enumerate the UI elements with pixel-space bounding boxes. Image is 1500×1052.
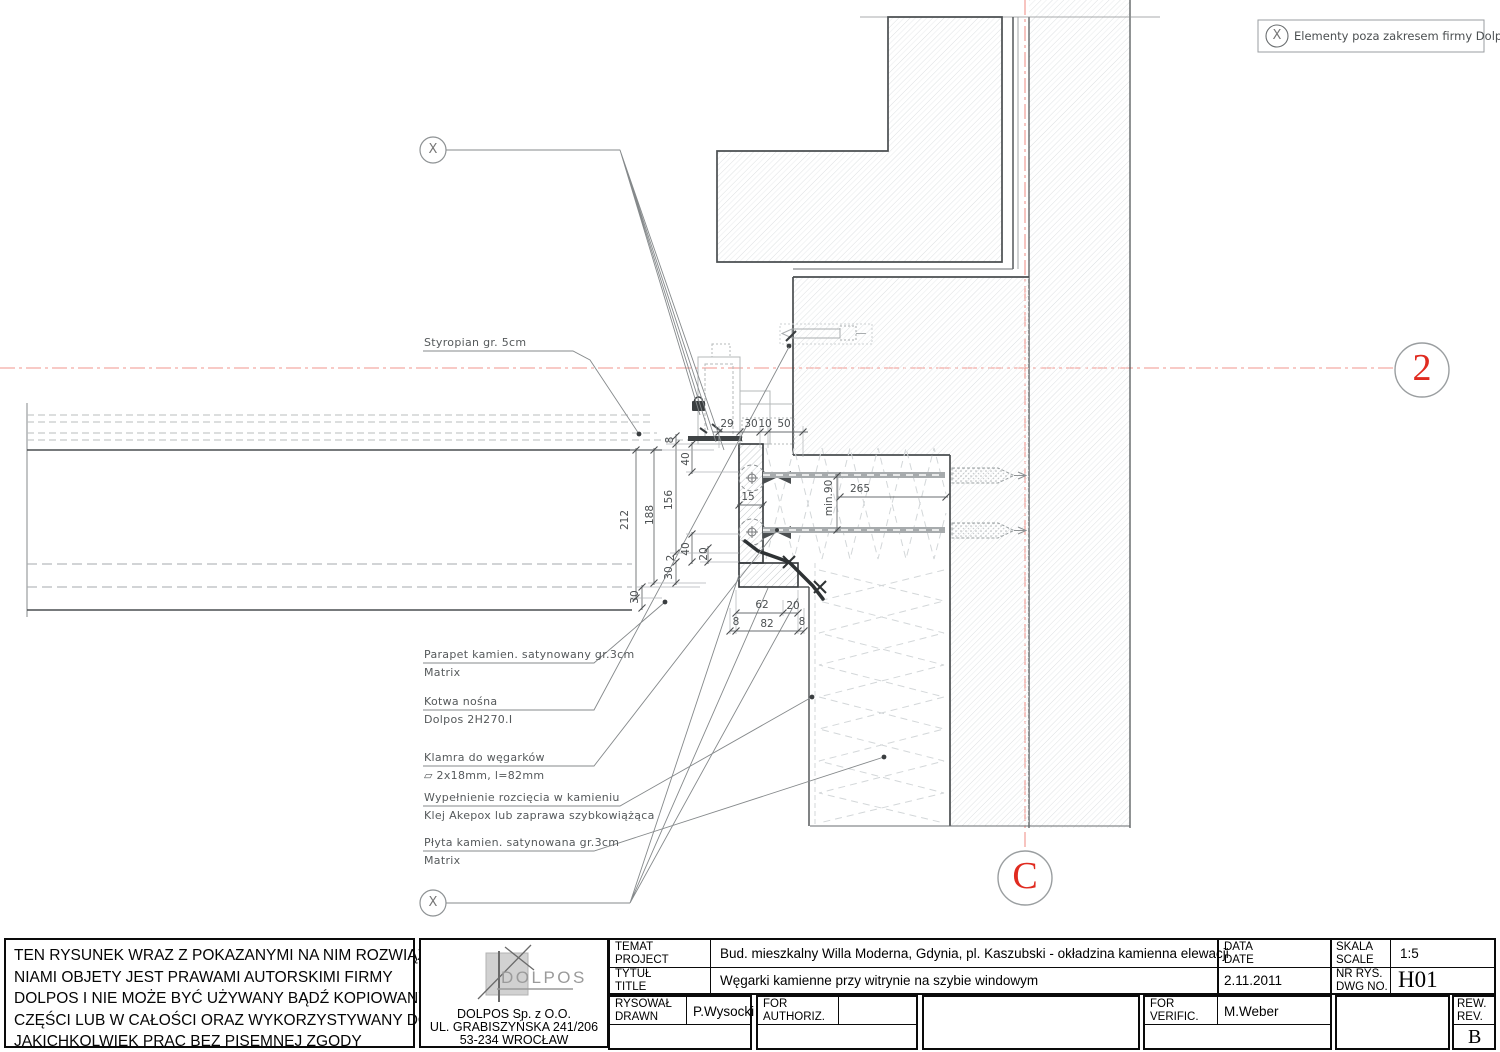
copyright-line: DOLPOS I NIE MOŻE BYĆ UŻYWANY BĄDŹ KOPIO… bbox=[14, 988, 405, 1010]
technical-drawing-canvas bbox=[0, 0, 1500, 935]
field-data: DATADATE bbox=[1224, 941, 1254, 967]
dimension-label: 29 bbox=[720, 418, 733, 430]
dimension-label: 20 bbox=[786, 600, 799, 612]
dimension-label: 8 bbox=[664, 437, 676, 444]
revision-value: B bbox=[1468, 1026, 1481, 1049]
copyright-line: JAKICHKOLWIEK PRAC BEZ PISEMNEJ ZGODY bbox=[14, 1031, 405, 1052]
field-tytul: TYTUŁTITLE bbox=[615, 968, 651, 994]
dimension-label: 8 bbox=[733, 616, 740, 628]
date-value: 2.11.2011 bbox=[1224, 973, 1282, 988]
dimension-label: 30 bbox=[744, 418, 757, 430]
scope-marker-top-icon: X bbox=[429, 142, 438, 157]
callout-title: Płyta kamien. satynowana gr.3cm bbox=[424, 836, 619, 849]
callout-title: Kotwa nośna bbox=[424, 695, 497, 708]
field-skala: SKALASCALE bbox=[1336, 941, 1374, 967]
field-temat: TEMATPROJECT bbox=[615, 941, 669, 967]
company-name: DOLPOS Sp. z O.O. bbox=[421, 1008, 607, 1020]
callout-title: Wypełnienie rozcięcia w kamieniu bbox=[424, 791, 620, 804]
dimension-label: 30 bbox=[629, 590, 641, 603]
dimension-label: 20 bbox=[698, 547, 710, 560]
dimension-label: 82 bbox=[760, 618, 773, 630]
verific-box: FORVERIFIC. M.Weber bbox=[1143, 995, 1332, 1050]
legend-text: Elementy poza zakresem firmy Dolpos bbox=[1294, 29, 1500, 43]
dwg-no-value: H01 bbox=[1398, 967, 1438, 993]
copyright-line: TEN RYSUNEK WRAZ Z POKAZANYMI NA NIM ROZ… bbox=[14, 945, 405, 967]
dimension-label: 2 bbox=[665, 555, 677, 562]
project-value: Bud. mieszkalny Willa Moderna, Gdynia, p… bbox=[720, 946, 1229, 961]
dimension-label: 10 bbox=[758, 418, 771, 430]
wall-structures bbox=[717, 0, 1160, 828]
verified-by-value: M.Weber bbox=[1224, 1004, 1279, 1019]
company-box: DOLPOS DOLPOS Sp. z O.O. UL. GRABISZYŃSK… bbox=[419, 938, 609, 1048]
drawing-sheet: Elementy poza zakresem firmy Dolpos X X … bbox=[0, 0, 1500, 1052]
dimension-label: 212 bbox=[619, 510, 631, 530]
drawn-by-value: P.Wysocki bbox=[693, 1004, 754, 1019]
dimension-label: 156 bbox=[663, 490, 675, 510]
dimension-label: min.90 bbox=[823, 480, 835, 517]
drawn-box: RYSOWAŁDRAWN P.Wysocki bbox=[608, 995, 752, 1050]
dimension-label: 40 bbox=[680, 542, 692, 555]
empty-box-1 bbox=[922, 995, 1140, 1050]
axis-lines bbox=[0, 0, 1394, 850]
callout-title: Styropian gr. 5cm bbox=[424, 336, 526, 349]
company-street: UL. GRABISZYŃSKA 241/206 bbox=[421, 1021, 607, 1033]
dimension-label: 62 bbox=[755, 599, 768, 611]
revision-box: REW.REV. B bbox=[1452, 995, 1496, 1050]
dimension-label: 188 bbox=[644, 505, 656, 525]
dimension-label: 265 bbox=[850, 483, 870, 495]
field-verific: FORVERIFIC. bbox=[1150, 998, 1199, 1024]
callout-title: Klamra do węgarków bbox=[424, 751, 545, 764]
dimension-label: 15 bbox=[741, 491, 754, 503]
callout-subtitle: Dolpos 2H270.I bbox=[424, 713, 512, 726]
callout-subtitle: Matrix bbox=[424, 666, 460, 679]
dimension-label: 50 bbox=[777, 418, 790, 430]
axis-marker-2: 2 bbox=[1413, 346, 1432, 390]
sill-lines bbox=[27, 403, 700, 617]
copyright-line: NIAMI OBJETY JEST PRAWAMI AUTORSKIMI FIR… bbox=[14, 967, 405, 989]
callout-subtitle: Klej Akepox lub zaprawa szybkowiążąca bbox=[424, 809, 655, 822]
field-nr-rys: NR RYS.DWG NO. bbox=[1336, 968, 1388, 994]
scale-value: 1:5 bbox=[1400, 946, 1419, 961]
authoriz-box: FORAUTHORIZ. bbox=[756, 995, 918, 1050]
logo-wordmark: DOLPOS bbox=[501, 968, 587, 988]
empty-box-2 bbox=[1335, 995, 1450, 1050]
callout-subtitle: ▱ 2x18mm, l=82mm bbox=[424, 769, 544, 782]
field-rew: REW.REV. bbox=[1457, 998, 1486, 1024]
field-rysowal: RYSOWAŁDRAWN bbox=[615, 998, 672, 1024]
dimension-label: 40 bbox=[680, 452, 692, 465]
legend-scope-icon: X bbox=[1273, 28, 1282, 43]
dimension-label: 30 bbox=[663, 566, 675, 579]
callout-title: Parapet kamien. satynowany gr.3cm bbox=[424, 648, 635, 661]
titleblock-header: TEMATPROJECT Bud. mieszkalny Willa Moder… bbox=[608, 938, 1496, 995]
field-authoriz: FORAUTHORIZ. bbox=[763, 998, 825, 1024]
title-value: Węgarki kamienne przy witrynie na szybie… bbox=[720, 973, 1038, 988]
dimension-label: 8 bbox=[799, 616, 806, 628]
insulation-zigzag bbox=[766, 448, 946, 824]
scope-marker-bottom-icon: X bbox=[429, 895, 438, 910]
callout-subtitle: Matrix bbox=[424, 854, 460, 867]
company-city: 53-234 WROCŁAW bbox=[421, 1034, 607, 1046]
copyright-line: CZĘŚCI LUB W CAŁOŚCI ORAZ WYKORZYSTYWANY… bbox=[14, 1010, 405, 1032]
axis-marker-c: C bbox=[1012, 854, 1037, 898]
copyright-box: TEN RYSUNEK WRAZ Z POKAZANYMI NA NIM ROZ… bbox=[4, 938, 415, 1048]
